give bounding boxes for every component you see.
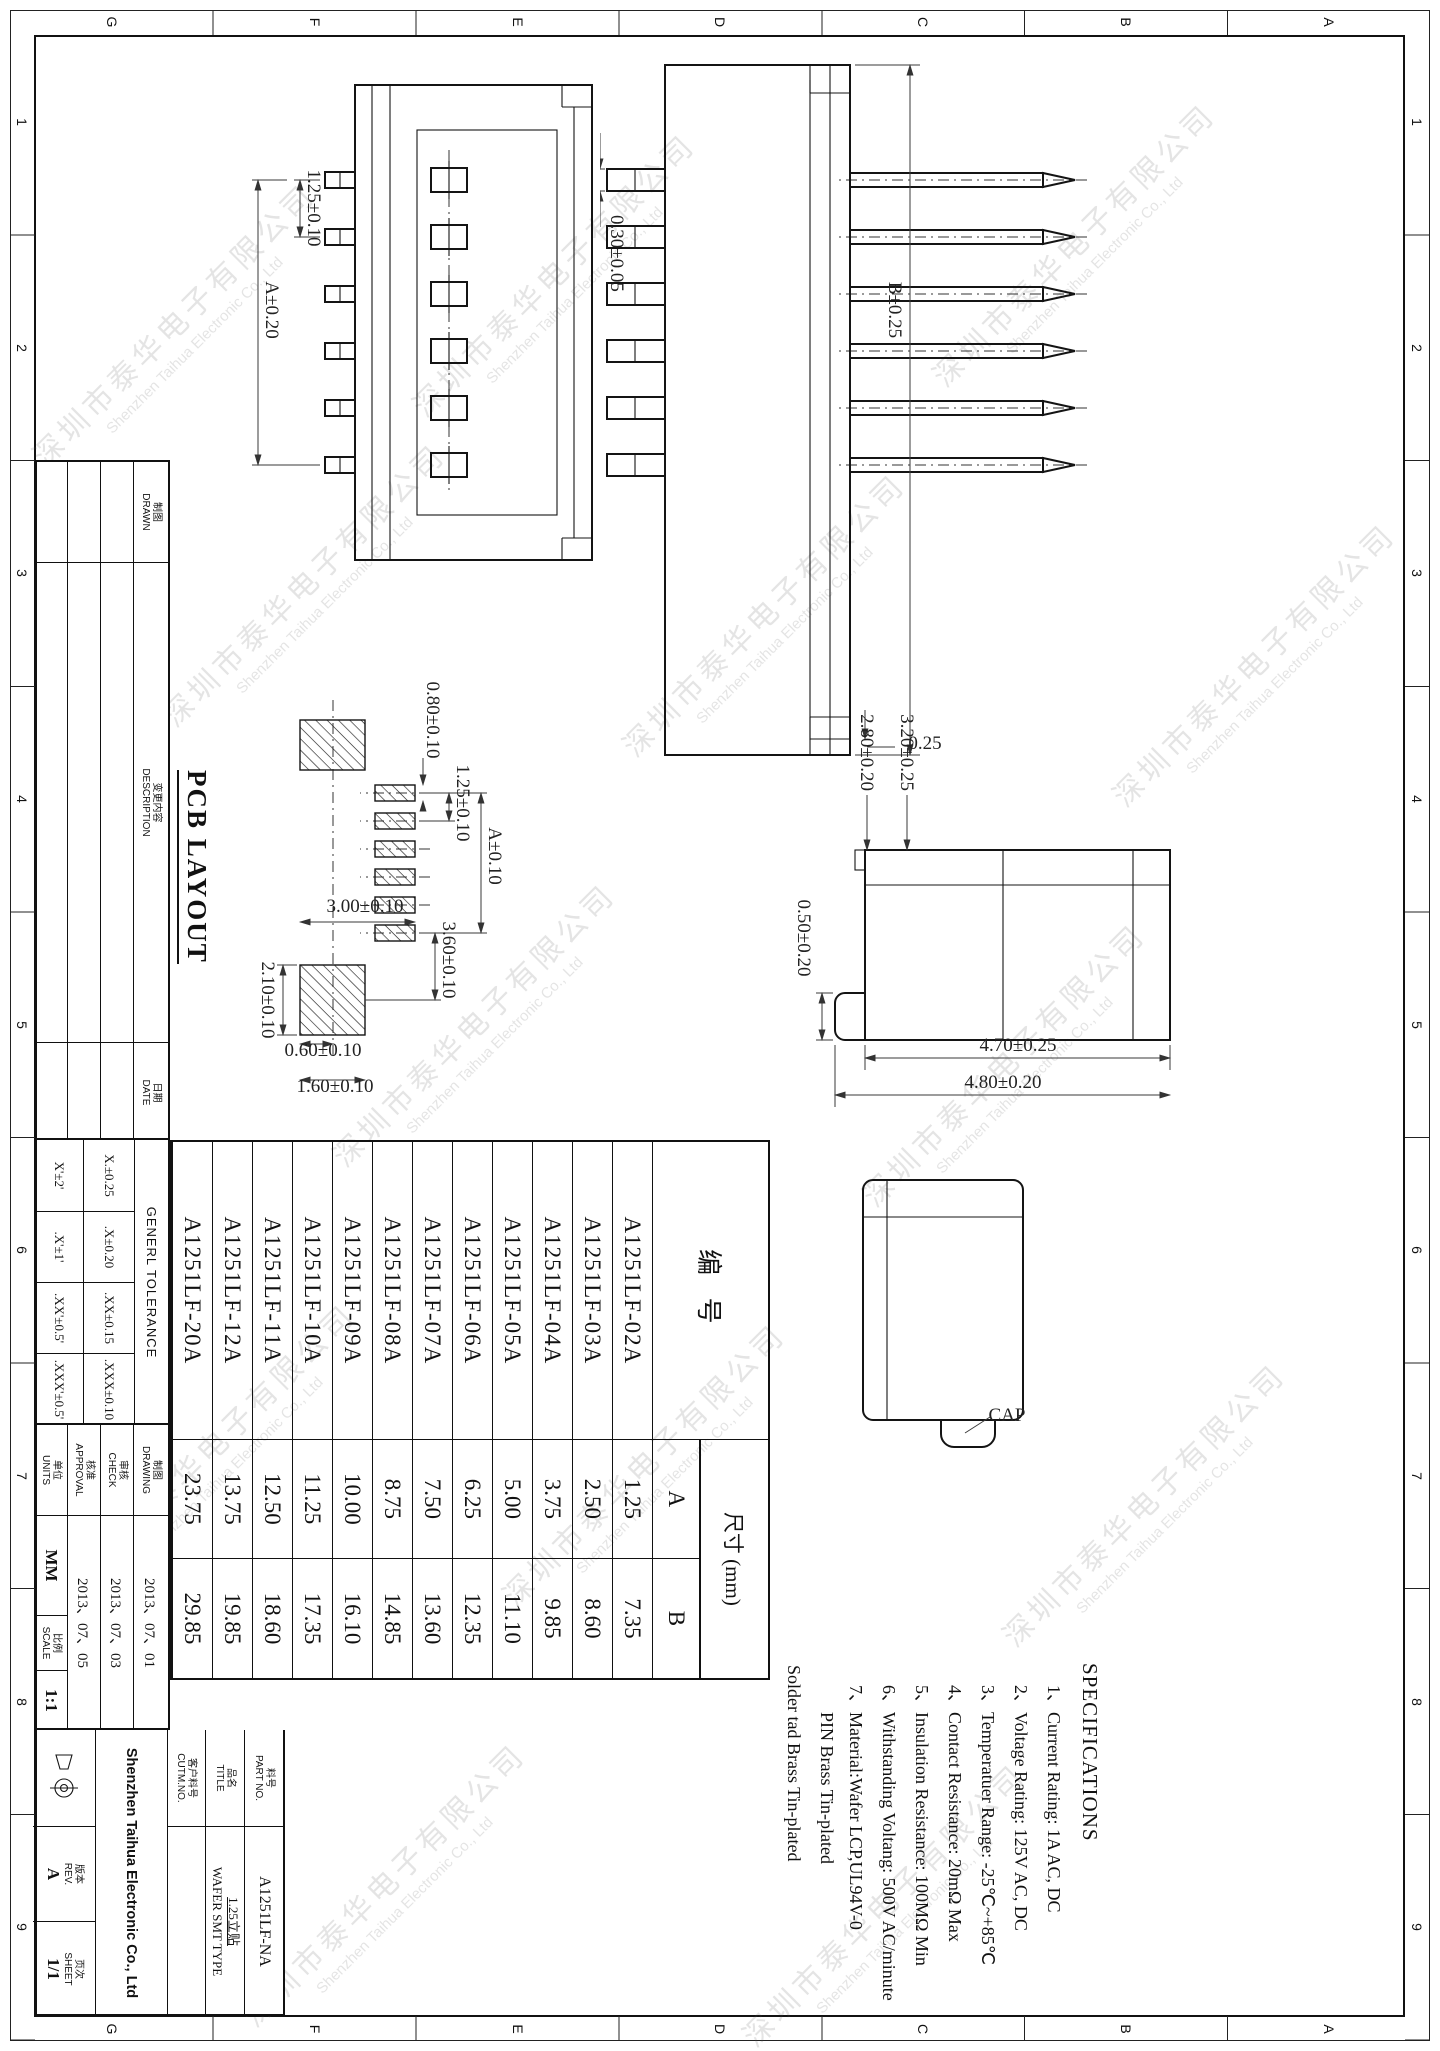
dim-b: 14.85 [372,1559,412,1678]
dim-body-width-top: 3.20±0.25 [896,714,917,850]
revision-cell [101,1042,134,1142]
dim-a: 3.75 [532,1440,572,1559]
drawing-page: 1 2 3 4 5 6 7 8 9 1 2 3 4 5 6 7 8 9 A B … [0,0,1440,2051]
dim-a: 12.50 [252,1440,292,1559]
revision-cell [101,562,134,1042]
dim-b: 16.10 [332,1559,372,1678]
dim-a: 13.75 [212,1440,252,1559]
svg-text:B±0.25: B±0.25 [884,282,905,338]
revision-header-description: 变更内容DESCRIPTION [134,562,168,1042]
dim-b: 9.85 [532,1559,572,1678]
zone-letter: E [510,2024,526,2033]
dim-a: 2.50 [572,1440,612,1559]
col-header-b: B [652,1559,700,1678]
part-no: A1251LF-07A [412,1142,452,1440]
zone-letter: D [712,2024,728,2034]
tolerance-angle: .XXX'±0.5' [35,1353,84,1425]
projection-symbol [33,1730,96,1826]
drawing-date: 2013、07、01 [134,1515,168,1730]
dim-a: 10.00 [332,1440,372,1559]
spec-item: 2、Voltage Rating: 125V AC, DC [1009,1685,1035,1931]
spec-item: 3、Temperatuer Range: -25℃~+85℃ [976,1685,1002,1965]
zone-number: 7 [1409,1472,1425,1480]
dim-b: 19.85 [212,1559,252,1678]
zone-letter: F [307,2025,323,2034]
dim-offset-a: 0.60±0.10 [285,1040,362,1061]
part-no: A1251LF-20A [172,1142,212,1440]
spec-item: 4、Contact Resistance: 20mΩ Max [943,1685,969,1942]
units-value: MM [35,1515,68,1615]
dim-a: 6.25 [452,1440,492,1559]
spec-item: PIN Brass Tin-plated [816,1712,837,1864]
svg-text:3.60±0.10: 3.60±0.10 [438,922,459,999]
check-date: 2013、07、03 [101,1515,134,1730]
side-profile-view: 3.20±0.25 2.80±0.20 0.50±0.20 4.70±0.25 … [738,645,1178,1145]
svg-text:2.10±0.10: 2.10±0.10 [257,962,278,1039]
part-no: A1251LF-06A [452,1142,492,1440]
col-header-dim: 尺寸 (mm) [700,1440,768,1678]
zone-number: 5 [1409,1021,1425,1029]
zone-letter: C [915,17,931,27]
dim-a: 5.00 [492,1440,532,1559]
svg-text:0.60±0.10: 0.60±0.10 [285,1040,362,1061]
zone-number: 5 [14,1021,30,1029]
zone-number: 3 [1409,569,1425,577]
tolerance-title: GENERL TOLERANCE [135,1140,168,1425]
pins [607,169,1087,476]
part-no: A1251LF-10A [292,1142,332,1440]
partno-label: 料号PART NO. [245,1730,283,1826]
dim-b: 12.35 [452,1559,492,1678]
zone-number: 4 [14,795,30,803]
tolerance-value: .XXX±0.10 [84,1353,135,1425]
dim-bigpad-width: 2.10±0.10 [257,962,297,1039]
spec-item: Solder tad Brass Tin-plated [783,1665,804,1862]
zone-number: 1 [14,118,30,126]
tolerance-value: .XX±0.15 [84,1282,135,1353]
revision-cell [68,562,101,1042]
spec-item: 5、Insulation Resistance: 100MΩ Min [910,1685,936,1966]
zone-letter: B [1118,17,1134,26]
part-no: A1251LF-12A [212,1142,252,1440]
revision-header-date: 日期DATE [134,1042,168,1142]
zone-number: 3 [14,569,30,577]
zone-letter: G [104,17,120,28]
scale-value: 1:1 [35,1670,68,1730]
dim-b: 29.85 [172,1559,212,1678]
dim-b: 13.60 [412,1559,452,1678]
company-name: Shenzhen Taihua Electronic Co., Ltd [96,1730,168,2016]
zone-number: 9 [14,1923,30,1931]
dim-foot: 0.50±0.20 [793,900,833,1040]
part-no: A1251LF-11A [252,1142,292,1440]
dim-pad-width: 0.80±0.10 [422,682,443,810]
part-no: A1251LF-04A [532,1142,572,1440]
scale-label: 比例SCALE [35,1615,68,1670]
title-company-block: 料号PART NO. A1251LF-NA 品名TITLE 1.25立贴WAFE… [35,1730,285,2016]
svg-text:4.80±0.20: 4.80±0.20 [965,1072,1042,1093]
front-view: 1.25±0.10 A±0.20 [230,60,662,700]
approval-label: 核准APPROVAL [68,1425,101,1515]
zone-number: 2 [14,344,30,352]
tolerance-value: X.±0.25 [84,1140,135,1211]
zone-letter: B [1118,2024,1134,2033]
revision-cell [68,462,101,562]
svg-text:A±0.20: A±0.20 [261,281,282,338]
rev-cell: 版本REV.A [33,1826,96,1921]
zone-number: 6 [14,1246,30,1254]
drawing-sheet: 1 2 3 4 5 6 7 8 9 1 2 3 4 5 6 7 8 9 A B … [0,0,1440,2051]
customer-partno-label: 客户料号CUTM.NO. [168,1730,206,1826]
third-angle-projection-icon [48,1752,80,1804]
zone-letter: F [307,18,323,27]
part-no: A1251LF-03A [572,1142,612,1440]
svg-text:3.20±0.25: 3.20±0.25 [896,714,917,791]
zone-letter: D [712,17,728,27]
dim-pad-pitch: 1.25±0.10 [420,765,473,842]
svg-text:0.50±0.20: 0.50±0.20 [793,900,814,977]
dim-b: 17.35 [292,1559,332,1678]
revision-cell [35,562,68,1042]
cap-view: CAP [850,1165,1035,1465]
svg-text:A±0.10: A±0.10 [484,827,505,884]
tolerance-value: .X±0.20 [84,1211,135,1282]
zone-number: 9 [1409,1923,1425,1931]
svg-text:CAP: CAP [989,1405,1026,1426]
revision-cell [35,1042,68,1142]
zone-letter: E [510,17,526,26]
dim-pitch: 1.25±0.10 [294,170,324,247]
pcb-layout-title: PCB LAYOUT [177,770,212,964]
title-label: 品名TITLE [206,1730,245,1826]
svg-text:1.25±0.10: 1.25±0.10 [303,170,324,247]
part-no: A1251LF-02A [612,1142,652,1440]
dim-a: 11.25 [292,1440,332,1559]
units-label: 单位UNITS [35,1425,68,1515]
svg-text:1.25±0.10: 1.25±0.10 [452,765,473,842]
dim-a: 1.25 [612,1440,652,1559]
pcb-layout: A±0.10 1.25±0.10 0.80±0.10 3.60±0.10 3.0… [240,660,505,1130]
zone-number: 4 [1409,795,1425,803]
svg-text:3.00±0.10: 3.00±0.10 [327,896,404,917]
col-header-a: A [652,1440,700,1559]
profile-body [835,850,1170,1040]
pads [300,700,430,1060]
tolerance-table: GENERL TOLERANCE X.±0.25 .X±0.20 .XX±0.1… [35,1140,170,1425]
dim-body-width-mid: 2.80±0.20 [856,714,877,850]
zone-number: 7 [14,1472,30,1480]
dim-b: 7.35 [612,1559,652,1678]
zone-letter: G [104,2024,120,2035]
specifications-title: SPECIFICATIONS [1077,1663,1102,1842]
tolerance-angle: .X'±1' [35,1211,84,1282]
tolerance-angle: X'±2' [35,1140,84,1211]
check-label: 审核CHECK [101,1425,134,1515]
spec-item: 7、Material:Wafer LCP,UL94V-0 [844,1685,870,1930]
dim-a: 8.75 [372,1440,412,1559]
zone-number: 1 [1409,118,1425,126]
zone-letter: C [915,2024,931,2034]
dim-b: 11.10 [492,1559,532,1678]
revision-header-drawn: 制图DRAWN [134,462,168,562]
revision-cell [68,1042,101,1142]
title-value: 1.25立贴WAFER SMT TYPE [206,1826,245,2016]
connector-body [355,85,592,560]
partno-value: A1251LF-NA [245,1826,283,2016]
dim-b: 8.60 [572,1559,612,1678]
zone-number: 8 [1409,1698,1425,1706]
dim-a: 7.50 [412,1440,452,1559]
svg-text:2.80±0.20: 2.80±0.20 [856,714,877,791]
part-number-table: 编 号 尺寸 (mm) A B A1251LF-02A1.257.35 A125… [170,1140,770,1680]
revision-table: 制图DRAWN 变更内容DESCRIPTION 日期DATE [35,460,170,1140]
spec-item: 6、Withstanding Voltang: 500V AC/minute [877,1685,903,2001]
part-no: A1251LF-08A [372,1142,412,1440]
svg-text:1.60±0.10: 1.60±0.10 [297,1076,374,1097]
zone-letter: A [1321,2024,1337,2033]
revision-cell [35,462,68,562]
drawing-label: 制图DRAWING [134,1425,168,1515]
part-no: A1251LF-05A [492,1142,532,1440]
part-no: A1251LF-09A [332,1142,372,1440]
zone-number: 8 [14,1698,30,1706]
revision-cell [101,462,134,562]
svg-text:4.70±0.25: 4.70±0.25 [980,1035,1057,1056]
dim-offset-b: 1.60±0.10 [297,1076,374,1097]
approval-date: 2013、07、05 [68,1515,101,1730]
dim-bigpad-height: 3.00±0.10 [300,896,415,922]
zone-number: 2 [1409,344,1425,352]
zone-letter: A [1321,17,1337,26]
zone-number: 6 [1409,1246,1425,1254]
dim-a: 23.75 [172,1440,212,1559]
pins [325,172,355,473]
approval-block: 制图DRAWING 2013、07、01 审核CHECK 2013、07、03 … [35,1425,170,1730]
spec-item: 1、Current Rating: 1A AC, DC [1042,1685,1068,1913]
sheet-cell: 页次SHEET1/1 [33,1921,96,2016]
customer-partno-value [168,1826,206,2016]
svg-text:0.80±0.10: 0.80±0.10 [422,682,443,759]
dim-b: 18.60 [252,1559,292,1678]
tolerance-angle: .XX'±0.5' [35,1282,84,1353]
contacts [431,150,467,495]
